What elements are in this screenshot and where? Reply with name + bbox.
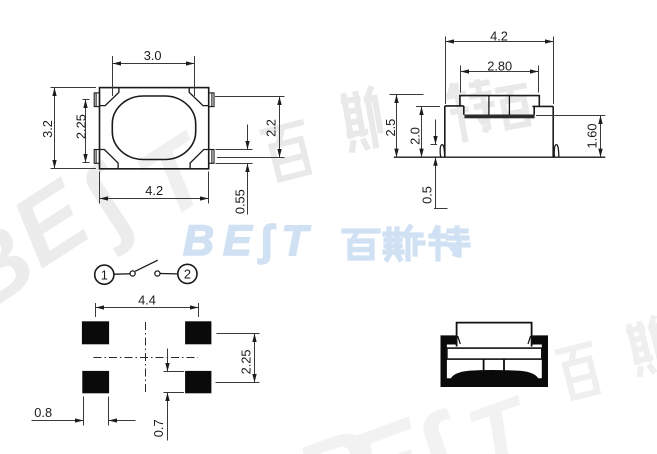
svg-text:1.60: 1.60 — [585, 124, 600, 149]
svg-text:0.55: 0.55 — [233, 189, 248, 214]
svg-text:0.5: 0.5 — [419, 186, 434, 204]
svg-text:2.5: 2.5 — [383, 119, 398, 137]
svg-text:T: T — [455, 376, 545, 454]
svg-text:4.2: 4.2 — [490, 28, 508, 43]
svg-text:0.7: 0.7 — [151, 419, 166, 437]
svg-text:3.0: 3.0 — [144, 48, 162, 63]
svg-text:2.25: 2.25 — [73, 114, 88, 139]
svg-text:2.0: 2.0 — [408, 127, 423, 145]
svg-text:1: 1 — [101, 267, 108, 282]
svg-text:0.8: 0.8 — [34, 405, 52, 420]
svg-text:2.25: 2.25 — [239, 349, 254, 374]
svg-text:3.2: 3.2 — [40, 120, 55, 138]
svg-text:2.2: 2.2 — [264, 119, 279, 137]
svg-text:2: 2 — [184, 267, 191, 282]
svg-text:4.2: 4.2 — [145, 183, 163, 198]
svg-text:BE∫T: BE∫T — [183, 217, 317, 265]
svg-text:4.4: 4.4 — [138, 292, 156, 307]
svg-text:2.80: 2.80 — [487, 59, 512, 74]
